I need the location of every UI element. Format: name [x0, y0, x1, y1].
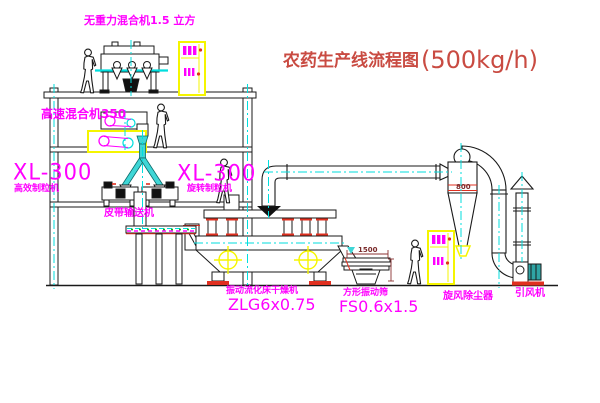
fan-motor	[528, 264, 541, 280]
mixer-discharge-funnels	[112, 62, 152, 80]
label-cyclone: 旋风除尘器	[443, 292, 493, 302]
label-granulator-right-model: XL-300	[177, 162, 256, 184]
cyclone-discharge	[456, 246, 470, 256]
gravity-free-mixer	[95, 42, 168, 93]
induced-draft-fan	[512, 262, 544, 286]
label-granulator-left-name: 高效制粒机	[14, 185, 59, 194]
cyclone-diameter-dim: 800	[456, 183, 471, 191]
process-flow-diagram: 农药生产线流程图 (500kg/h) 无重力混合机1.5 立方 高速混合机350…	[0, 0, 600, 403]
label-fan: 引风机	[515, 289, 545, 299]
label-gravity-free-mixer: 无重力混合机1.5 立方	[84, 15, 195, 26]
belt-conveyor	[126, 224, 200, 284]
control-cabinet-ground	[428, 231, 454, 284]
label-screen-model: FS0.6x1.5	[339, 299, 418, 315]
dryer-feet	[207, 272, 331, 285]
screen-width-dim: 1500	[358, 246, 377, 254]
label-granulator-left-model: XL-300	[13, 161, 92, 183]
label-dryer-model: ZLG6x0.75	[228, 297, 316, 313]
label-belt-conveyor: 皮带输送机	[104, 209, 154, 219]
title-capacity: (500kg/h)	[421, 46, 538, 74]
dryer-plenum	[196, 250, 342, 272]
person-roof	[81, 49, 96, 93]
control-cabinet-roof	[179, 42, 205, 95]
label-granulator-right-name: 旋转制粒机	[187, 185, 232, 194]
label-high-speed-mixer: 高速混合机350	[41, 108, 126, 120]
floor2-slab	[50, 147, 252, 152]
screen-base	[352, 270, 380, 284]
fan-base	[512, 282, 544, 286]
dryer-nozzles	[206, 218, 328, 236]
floor3-slab	[50, 202, 252, 207]
mixer-drive-guard	[88, 131, 146, 152]
cyclone-separator	[448, 146, 518, 278]
drawing-title: 农药生产线流程图 (500kg/h)	[283, 46, 538, 74]
fluid-bed-dryer	[196, 210, 357, 285]
person-floor2	[154, 104, 169, 148]
person-ground	[408, 240, 423, 284]
title-text: 农药生产线流程图	[283, 46, 419, 74]
